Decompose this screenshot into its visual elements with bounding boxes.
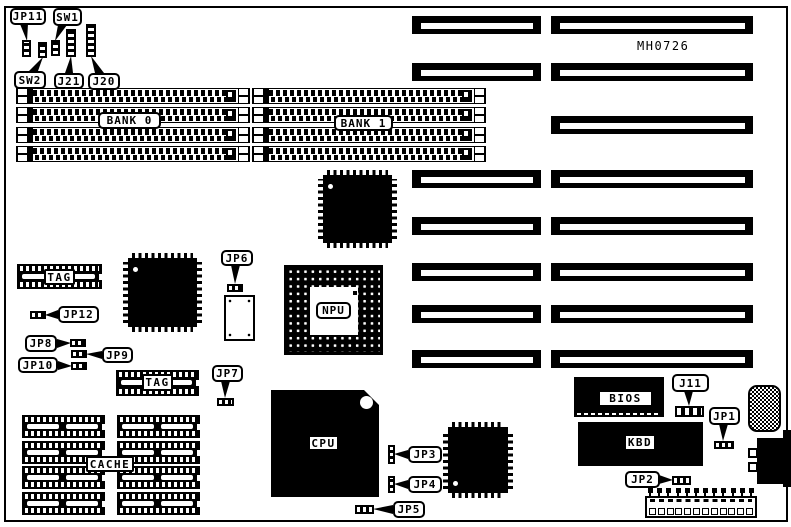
power-connector-pins [648,488,754,496]
keyboard-connector-tab [748,462,758,472]
bank1-simm-socket [252,88,486,104]
power-connector [645,488,757,518]
npu-pin1-mark [353,291,357,295]
bank0-simm-socket [16,127,250,143]
label-kbd: KBD [624,434,656,451]
expansion-slot [551,63,753,81]
label-cache: CACHE [86,456,134,472]
label-jp11: JP11 [10,8,46,25]
label-cpu: CPU [308,435,339,451]
label-jp2: JP2 [625,471,660,488]
label-jp7: JP7 [212,365,243,382]
jumper-j11-block [675,406,704,417]
jumper-sw2-block [38,42,47,58]
label-sw2: SW2 [14,71,46,89]
label-jp10: JP10 [18,357,58,373]
expansion-slot [551,170,753,188]
label-jp12: JP12 [58,306,99,323]
expansion-slot [412,263,541,281]
expansion-slot [551,305,753,323]
jumper-jp1-block [714,441,734,449]
jumper-jp4-block [388,476,395,493]
label-jp1: JP1 [709,407,740,425]
oscillator [224,295,255,341]
qfp-chip-bottom [443,422,513,498]
jumper-jp9-block [71,350,87,358]
expansion-slot [412,170,541,188]
cache-socket [22,415,105,438]
label-j21: J21 [54,73,84,89]
label-tag-lower: TAG [142,374,173,391]
label-j11: J11 [672,374,709,392]
jumper-jp6-block [227,284,243,292]
bank1-simm-socket [252,146,486,162]
power-connector-sockets [649,508,753,515]
label-sw1: SW1 [53,8,82,26]
qfp-chip-top [318,170,397,248]
jumper-jp2-block [672,476,691,485]
expansion-slot [412,217,541,235]
label-jp5: JP5 [393,501,425,518]
jumper-jp12-block [30,311,46,319]
jumper-j21-block [66,29,76,57]
expansion-slot [412,305,541,323]
label-jp9: JP9 [102,347,133,363]
jumper-jp3-block [388,445,395,464]
jumper-jp7-block [217,398,234,406]
part-number: MH0726 [637,39,689,53]
jumper-j20-block [86,24,96,57]
expansion-slot [551,217,753,235]
keyboard-din-connector [748,385,781,432]
label-jp3: JP3 [408,446,442,463]
expansion-slot [551,16,753,34]
label-tag-upper: TAG [44,269,75,285]
jumper-jp5-block [355,505,374,514]
keyboard-connector-tab [748,448,758,458]
jumper-jp10-block [71,362,87,370]
motherboard-diagram: MH0726 BANK 0 BANK 1 JP11 SW1 SW2 J21 J2… [0,0,791,527]
jumper-jp8-block [70,339,86,347]
label-bank1: BANK 1 [334,115,393,131]
expansion-slot [551,263,753,281]
cache-socket [117,492,200,515]
power-connector-contacts [650,499,752,502]
expansion-slot [412,16,541,34]
qfp-chip-left [123,253,202,332]
keyboard-connector-edge [783,430,791,487]
expansion-slot [412,63,541,81]
cache-socket [117,415,200,438]
label-bios: BIOS [598,390,653,407]
bank0-simm-socket [16,88,250,104]
expansion-slot [412,350,541,368]
label-npu: NPU [316,302,351,319]
bank0-simm-socket [16,146,250,162]
jumper-jp11-block [22,40,31,57]
label-jp8: JP8 [25,335,57,352]
label-j20: J20 [88,73,120,90]
cpu-pin1-hole [360,396,373,409]
label-jp6: JP6 [221,250,253,266]
expansion-slot [551,116,753,134]
expansion-slot [551,350,753,368]
cache-socket [22,492,105,515]
jumper-sw1-block [51,40,60,56]
label-jp4: JP4 [408,476,442,493]
label-bank0: BANK 0 [98,112,161,129]
